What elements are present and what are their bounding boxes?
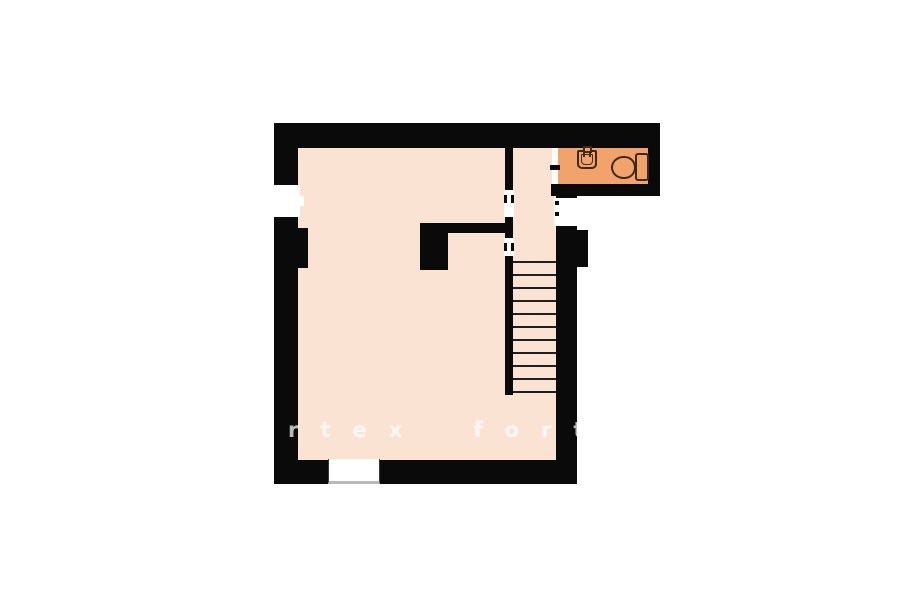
east-window-tick (555, 212, 559, 216)
stair-hall-doorway-upper (504, 190, 514, 217)
door-jamb-dash (511, 243, 514, 251)
floor-plan-canvas: rtex fort (0, 0, 900, 604)
bathroom-doorway-dash (550, 165, 560, 170)
stair-wall-lower (505, 256, 513, 395)
interior-wall-arm (448, 223, 505, 233)
interior-wall-column (420, 223, 448, 270)
faucet-prong (589, 153, 591, 157)
door-jamb-dash (504, 243, 507, 251)
stair-wall-middle (505, 217, 513, 238)
pier-east (556, 230, 588, 267)
faucet-prong (583, 153, 585, 157)
watermark-text: rtex fort (288, 418, 605, 442)
wall-bottom (274, 460, 577, 484)
wall-bathroom-bottom (551, 184, 660, 196)
left-window-sill (296, 196, 304, 206)
staircase (513, 257, 556, 396)
toilet-icon (611, 156, 636, 179)
stair-wall-upper (505, 148, 513, 190)
toilet-tank (635, 153, 649, 181)
wall-top (274, 123, 660, 148)
door-jamb-dash (511, 195, 514, 203)
stair-hall-doorway-lower (504, 238, 514, 256)
east-window-tick (555, 201, 559, 205)
faucet-icon (583, 146, 592, 153)
entry-door-opening (328, 459, 380, 484)
door-jamb-dash (504, 195, 507, 203)
pilaster-left (298, 228, 308, 268)
